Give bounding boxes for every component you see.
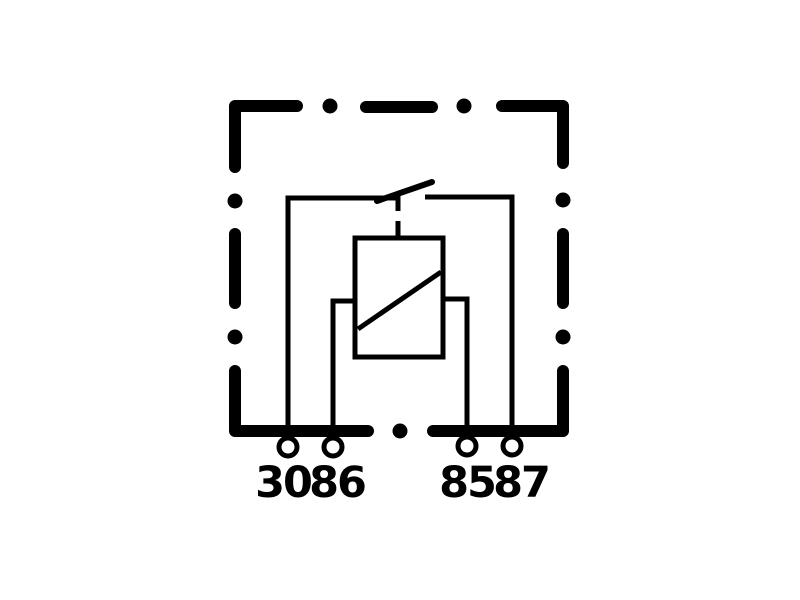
terminal-86-label: 86 [309, 458, 365, 508]
housing-dot [556, 193, 571, 208]
housing-corner-top-right [502, 106, 563, 163]
relay-schematic-canvas: 30 86 85 87 [0, 0, 800, 600]
terminal-87-label: 87 [493, 458, 549, 508]
relay-diagram: 30 86 85 87 [0, 0, 800, 600]
housing-corner-bottom-left [235, 371, 368, 431]
housing-dot [556, 330, 571, 345]
terminal-pins [279, 437, 521, 456]
wire-terminal-86 [333, 301, 355, 440]
coil-symbol [355, 238, 443, 357]
terminal-labels: 30 86 85 87 [255, 458, 549, 508]
coil-box [355, 238, 443, 357]
housing-dot [323, 99, 338, 114]
housing-corner-bottom-right [433, 371, 563, 431]
housing-dot [457, 99, 472, 114]
terminal-85-label: 85 [439, 458, 495, 508]
housing-dot [393, 424, 408, 439]
terminal-86-pin [324, 438, 342, 456]
terminal-30-pin [279, 438, 297, 456]
wire-terminal-85 [443, 299, 467, 440]
relay-internal-circuit [288, 182, 512, 440]
terminal-87-pin [503, 437, 521, 455]
housing-dot [228, 194, 243, 209]
housing-corner-top-left [235, 106, 297, 167]
terminal-30-label: 30 [255, 458, 311, 508]
switch-blade [377, 182, 432, 201]
switch-contact-symbol [377, 182, 432, 238]
terminal-85-pin [458, 437, 476, 455]
housing-dot [228, 330, 243, 345]
